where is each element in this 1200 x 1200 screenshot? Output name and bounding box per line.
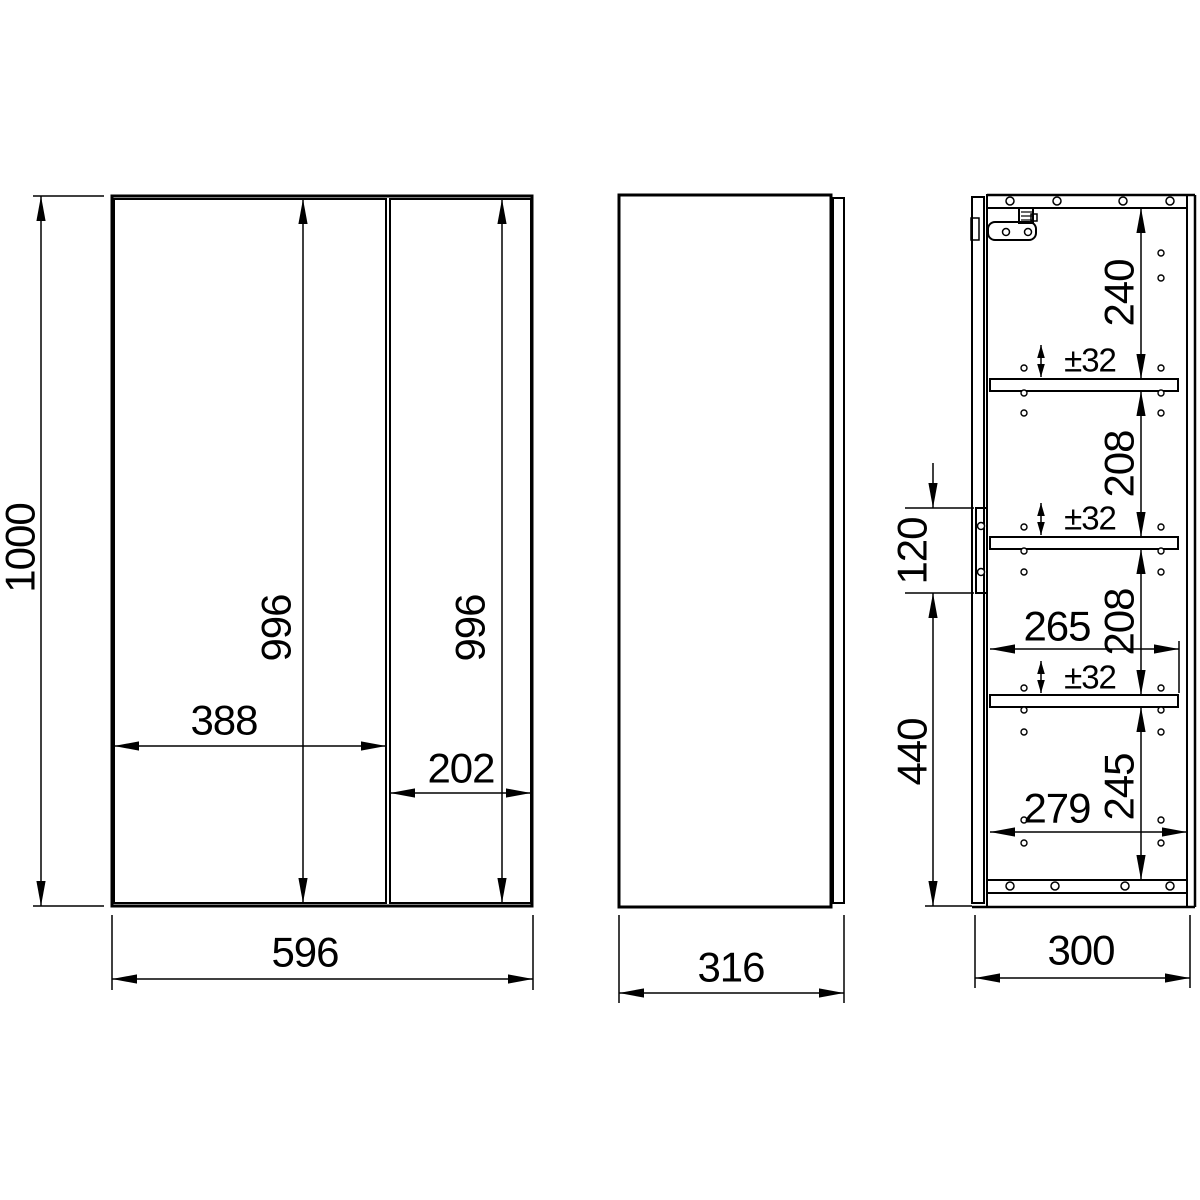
dim-label-overall-depth: 316 <box>697 944 764 991</box>
shelf-pin-hole <box>1158 275 1164 281</box>
shelf-pin-hole <box>1158 250 1164 256</box>
dim-label-shelf-1-adjustability: ±32 <box>1064 342 1116 379</box>
shelf-pin-hole <box>1021 410 1027 416</box>
dim-label-hinge-plate-position: 120 <box>889 517 936 584</box>
bottom-panel-screw-hole <box>1166 882 1174 890</box>
drawing-background <box>0 0 1200 1200</box>
hinge-screw <box>1025 229 1032 236</box>
dim-label-overall-width: 596 <box>271 929 338 976</box>
dim-label-shelf-space-1: 208 <box>1096 430 1143 497</box>
dim-label-shelf-depth: 265 <box>1023 603 1090 650</box>
shelf-pin-hole <box>1158 840 1164 846</box>
dim-label-shelf-3-adjustability: ±32 <box>1064 659 1116 696</box>
dim-label-right-door-width: 202 <box>427 745 494 792</box>
dim-label-interior-depth: 279 <box>1023 785 1090 832</box>
shelf-pin-hole <box>1158 707 1164 713</box>
shelf-pin-hole <box>1021 524 1027 530</box>
shelf-pin-hole <box>1021 685 1027 691</box>
shelf-pin-hole <box>1021 569 1027 575</box>
dim-label-left-door-height: 996 <box>253 594 300 661</box>
top-panel-screw-hole <box>1053 197 1061 205</box>
dim-label-shelf-space-2: 208 <box>1096 588 1143 655</box>
drawing-svg: 1000996996388202596316240208208245265279… <box>0 0 1200 1200</box>
dim-label-right-door-height: 996 <box>447 594 494 661</box>
cabinet-technical-drawing: 1000996996388202596316240208208245265279… <box>0 0 1200 1200</box>
shelf-pin-hole <box>1021 390 1027 396</box>
shelf-pin-hole <box>1021 840 1027 846</box>
middle-hinge-screw <box>978 569 985 576</box>
dim-label-top-shelf-space: 240 <box>1096 259 1143 326</box>
dim-label-overall-height: 1000 <box>0 503 44 592</box>
shelf-pin-hole <box>1158 390 1164 396</box>
shelf-pin-hole <box>1021 548 1027 554</box>
shelf-pin-hole <box>1158 365 1164 371</box>
top-panel-screw-hole <box>1006 197 1014 205</box>
shelf-pin-hole <box>1158 524 1164 530</box>
top-panel-screw-hole <box>1166 197 1174 205</box>
shelf-pin-hole <box>1158 729 1164 735</box>
bottom-panel-screw-hole <box>1121 882 1129 890</box>
dim-label-carcass-depth: 300 <box>1047 927 1114 974</box>
dim-label-shelf-2-adjustability: ±32 <box>1064 500 1116 537</box>
hinge-screw <box>1003 229 1010 236</box>
shelf-pin-hole <box>1021 365 1027 371</box>
shelf-pin-hole <box>1158 410 1164 416</box>
middle-hinge-screw <box>978 523 985 530</box>
shelf-pin-hole <box>1158 548 1164 554</box>
bottom-panel-screw-hole <box>1051 882 1059 890</box>
shelf-pin-hole <box>1158 569 1164 575</box>
shelf-pin-hole <box>1158 685 1164 691</box>
shelf-pin-hole <box>1021 707 1027 713</box>
dim-label-hinge-to-bottom: 440 <box>889 718 936 785</box>
shelf-pin-hole <box>1158 817 1164 823</box>
bottom-panel-screw-hole <box>1006 882 1014 890</box>
dim-label-left-door-width: 388 <box>190 697 257 744</box>
shelf-pin-hole <box>1021 729 1027 735</box>
top-panel-screw-hole <box>1119 197 1127 205</box>
dim-label-bottom-shelf-space: 245 <box>1096 753 1143 820</box>
